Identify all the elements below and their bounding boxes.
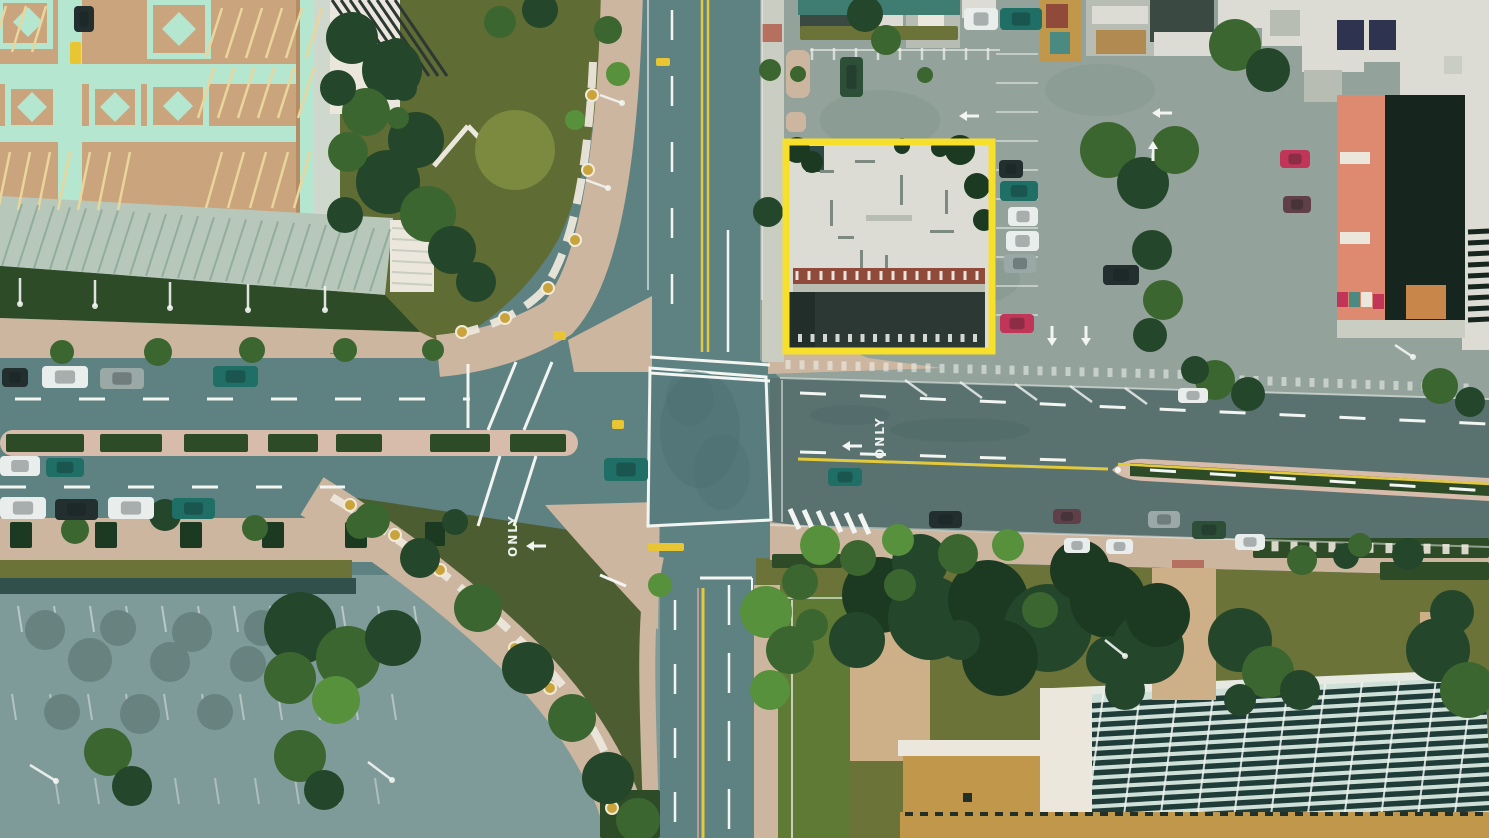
light-pole-head [167, 305, 173, 311]
structure [793, 284, 985, 292]
light-pole-head [1410, 354, 1416, 360]
structure [1349, 292, 1360, 307]
tree [1133, 318, 1167, 352]
stripe [1468, 231, 1489, 232]
road-texture [666, 370, 714, 426]
car-windshield [9, 372, 20, 383]
tree [1422, 368, 1458, 404]
car-windshield [80, 11, 89, 27]
light-pole-head [17, 301, 23, 307]
car-windshield [112, 372, 131, 385]
tree [320, 70, 356, 106]
tree [992, 529, 1024, 561]
structure [838, 236, 854, 239]
stripe [1468, 286, 1489, 287]
tree [365, 610, 421, 666]
car-windshield [1013, 258, 1027, 269]
tree [871, 25, 901, 55]
tree [1126, 583, 1190, 647]
tree [475, 110, 555, 190]
structure [930, 230, 954, 233]
car-windshield [184, 502, 203, 515]
planter [389, 529, 401, 541]
car-windshield [1010, 318, 1025, 329]
hedge [430, 434, 490, 452]
structure [1050, 32, 1070, 54]
tree [68, 638, 112, 682]
car-windshield [616, 463, 635, 477]
light-pole-head [92, 303, 98, 309]
tree [422, 339, 444, 361]
structure [786, 112, 806, 132]
car-windshield [1061, 512, 1073, 521]
stripe [1468, 308, 1489, 309]
car-windshield [1243, 537, 1256, 547]
structure [1361, 292, 1372, 307]
hedge [6, 434, 84, 452]
structure [855, 160, 875, 163]
car-windshield [55, 370, 75, 383]
tree [938, 534, 978, 574]
car-windshield [13, 501, 33, 514]
structure [1406, 285, 1446, 319]
tree [648, 573, 672, 597]
tree [304, 770, 344, 810]
tree [1280, 670, 1320, 710]
structure [945, 190, 948, 214]
tree [354, 502, 390, 538]
road-texture [694, 434, 750, 510]
tree [484, 6, 516, 38]
tree [61, 516, 89, 544]
planter [582, 164, 594, 176]
car-windshield [121, 501, 141, 514]
tree [44, 694, 80, 730]
tree [112, 766, 152, 806]
tree [565, 110, 585, 130]
car-windshield [938, 514, 953, 524]
tree [1181, 356, 1209, 384]
structure [830, 200, 833, 226]
car-windshield [1113, 269, 1129, 281]
structure [1373, 294, 1384, 309]
tree [840, 540, 876, 576]
car-windshield [1012, 12, 1030, 25]
planter [569, 234, 581, 246]
tree [782, 564, 818, 600]
planter [499, 312, 511, 324]
car-windshield [1016, 211, 1029, 222]
car-windshield [1011, 185, 1028, 197]
tree [548, 694, 596, 742]
car-windshield [838, 472, 853, 483]
structure [1154, 32, 1216, 56]
structure [963, 793, 972, 802]
tree [100, 610, 136, 646]
tree [1348, 533, 1372, 557]
car-windshield [1114, 542, 1126, 551]
tree [400, 538, 440, 578]
tree [594, 16, 622, 44]
tree [391, 75, 417, 101]
structure [1270, 10, 1300, 36]
tree [940, 620, 980, 660]
tree [239, 337, 265, 363]
lot-texture [1045, 64, 1155, 116]
car-windshield [1015, 235, 1030, 247]
tree [1246, 48, 1290, 92]
tree [1143, 280, 1183, 320]
tree [829, 612, 885, 668]
tree [1022, 592, 1058, 628]
tree [328, 132, 368, 172]
car-windshield [67, 503, 86, 516]
structure [1337, 20, 1364, 50]
structure [1092, 6, 1148, 24]
hedge [336, 434, 382, 452]
structure [1340, 152, 1370, 164]
tree [796, 609, 828, 641]
traffic-signal [656, 58, 670, 66]
stripe [1468, 253, 1489, 254]
tree [790, 66, 806, 82]
car-windshield [1202, 525, 1217, 536]
car-windshield [226, 370, 246, 383]
car-windshield [11, 460, 29, 472]
stripe [1468, 264, 1489, 265]
tree [25, 610, 65, 650]
stripe [1468, 297, 1489, 298]
tree [753, 197, 783, 227]
tree [884, 569, 916, 601]
planter [586, 89, 598, 101]
tree [759, 59, 781, 81]
tree [1287, 545, 1317, 575]
tree [454, 584, 502, 632]
median-nose-marker [1115, 467, 1121, 473]
tree [442, 509, 468, 535]
structure [762, 24, 782, 42]
tree [197, 694, 233, 730]
structure [1046, 4, 1068, 28]
traffic-signal [70, 42, 81, 64]
tree [1151, 126, 1199, 174]
car-windshield [1186, 391, 1199, 400]
tree [120, 694, 160, 734]
tree [882, 524, 914, 556]
road-marking-only-east: ONLY [873, 416, 887, 459]
structure [1444, 56, 1462, 74]
light-pole-head [605, 185, 611, 191]
tree [333, 338, 357, 362]
tree [382, 38, 410, 66]
tree [502, 642, 554, 694]
hedge [268, 434, 318, 452]
tree [750, 670, 790, 710]
road-texture [890, 418, 1030, 442]
tree [50, 340, 74, 364]
tree [1224, 684, 1256, 716]
traffic-signal [612, 420, 624, 429]
tree [801, 151, 823, 173]
light-pole-head [322, 307, 328, 313]
tree [312, 676, 360, 724]
tree [144, 338, 172, 366]
car-windshield [1288, 154, 1301, 165]
structure [1369, 20, 1396, 50]
tree [264, 652, 316, 704]
aerial-photo-stage: ONLY ONLY [0, 0, 1489, 838]
structure [1304, 70, 1342, 102]
stripe [1468, 275, 1489, 276]
tree [150, 642, 190, 682]
structure [1096, 30, 1146, 54]
light-pole-head [53, 778, 59, 784]
tree [606, 62, 630, 86]
tree [327, 197, 363, 233]
canal-strip-west [0, 578, 356, 594]
structure [820, 170, 834, 173]
car-windshield [974, 12, 989, 25]
car-windshield [1071, 541, 1082, 550]
tree [456, 262, 496, 302]
planter [344, 499, 356, 511]
tree [1430, 590, 1474, 634]
stripe [1468, 242, 1489, 243]
tree [800, 525, 840, 565]
structure [1337, 292, 1348, 307]
structure [1340, 232, 1370, 244]
tree [230, 646, 266, 682]
planter [542, 282, 554, 294]
hedge [510, 434, 566, 452]
traffic-signal [648, 543, 684, 551]
tree [1455, 387, 1485, 417]
structure [898, 740, 1058, 756]
tree [1132, 230, 1172, 270]
parking-deck [0, 0, 340, 232]
light-pole-head [619, 100, 625, 106]
light-pole-head [1122, 653, 1128, 659]
aerial-scene: ONLY ONLY [0, 0, 1489, 838]
tree [1231, 377, 1265, 411]
structure [900, 175, 903, 205]
tree [387, 107, 409, 129]
car-windshield [846, 65, 856, 89]
hedge [10, 522, 32, 548]
car-windshield [1291, 199, 1303, 209]
hedge [180, 522, 202, 548]
traffic-signal [553, 331, 566, 340]
planter [456, 326, 468, 338]
grass-strip-west [0, 560, 352, 580]
tree [242, 515, 268, 541]
car-windshield [57, 462, 74, 473]
car-windshield [1006, 164, 1017, 175]
light-pole-head [389, 777, 395, 783]
light-pole-head [245, 307, 251, 313]
tree [964, 173, 990, 199]
tree [582, 752, 634, 804]
hedge [184, 434, 248, 452]
road-marking-only-west: ONLY [506, 514, 520, 557]
tree [917, 67, 933, 83]
structure [1337, 320, 1465, 338]
hedge [100, 434, 162, 452]
tree [1105, 670, 1145, 710]
structure [866, 215, 912, 221]
structure [762, 0, 784, 362]
hedge [95, 522, 117, 548]
car-windshield [1157, 514, 1171, 524]
stripe [1468, 319, 1489, 320]
deck-edge [300, 0, 314, 232]
tree [1392, 538, 1424, 570]
